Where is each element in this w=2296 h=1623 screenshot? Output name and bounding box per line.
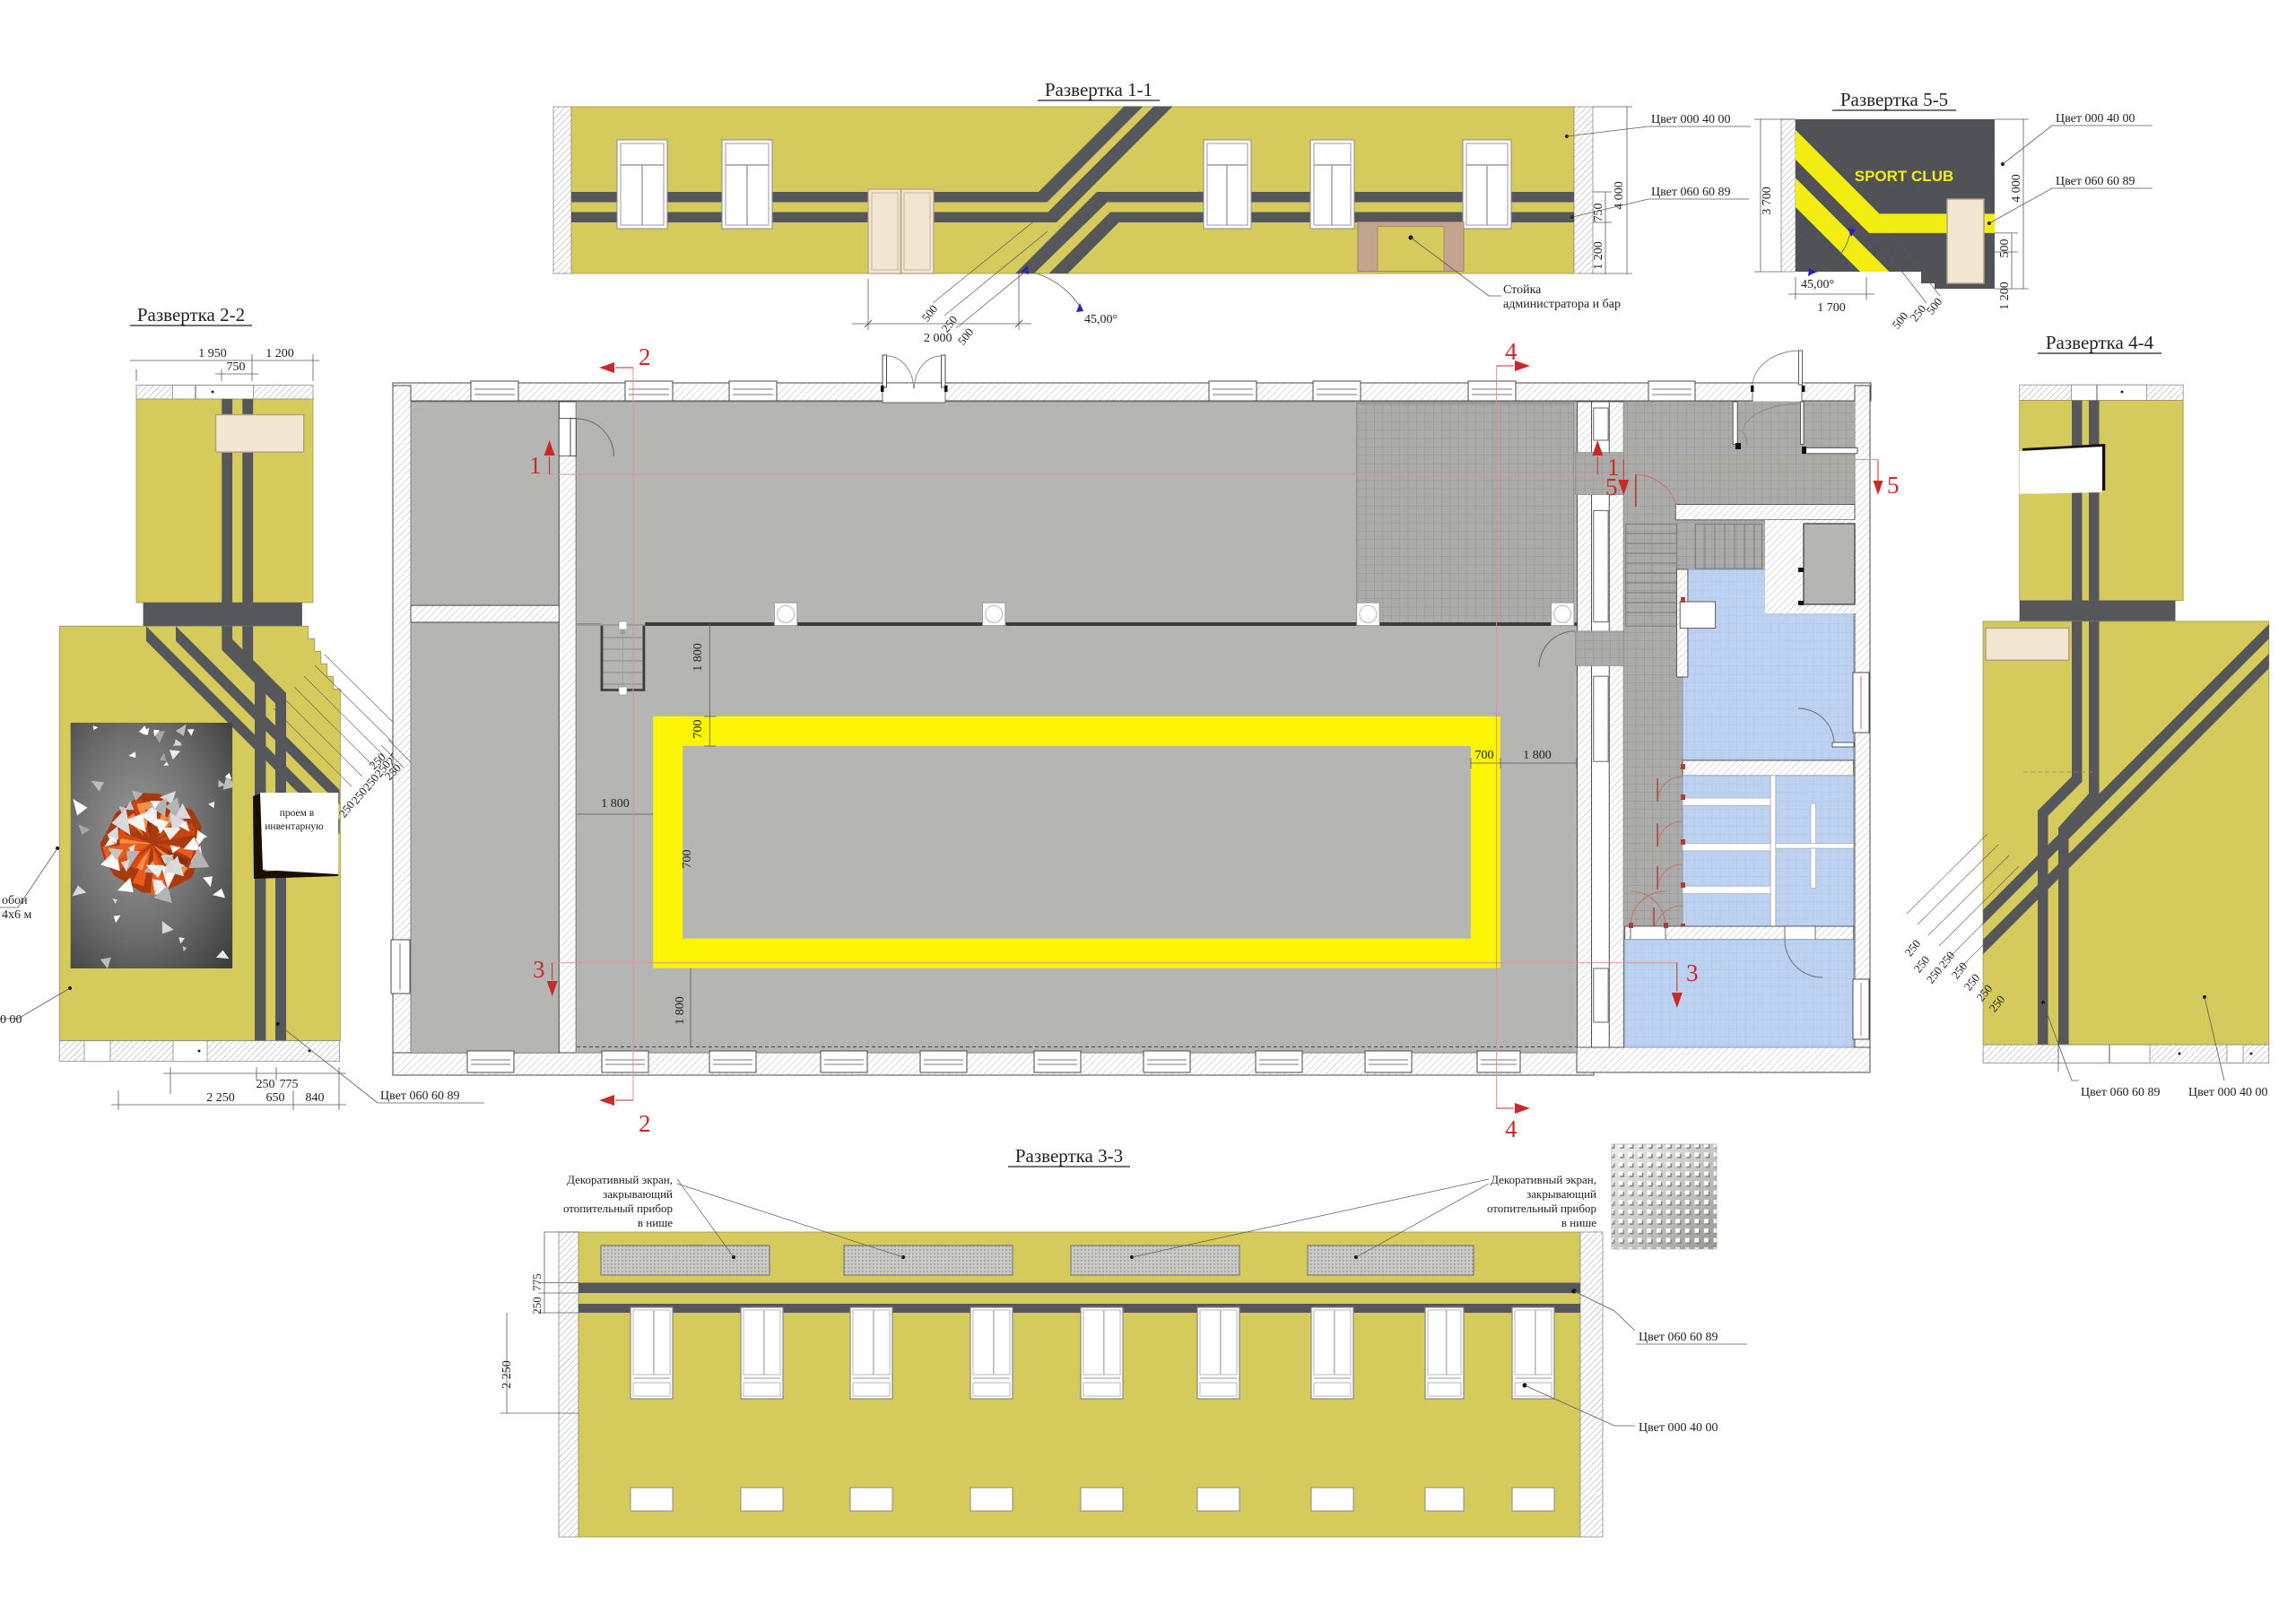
svg-text:проем в: проем в	[280, 808, 315, 819]
svg-text:2 250: 2 250	[500, 1360, 514, 1389]
svg-text:775: 775	[280, 1078, 299, 1091]
svg-text:750: 750	[227, 360, 246, 374]
svg-text:5: 5	[1887, 472, 1900, 499]
svg-text:1 200: 1 200	[1998, 282, 2012, 310]
svg-text:250: 250	[257, 1078, 275, 1091]
svg-text:Развертка 4-4: Развертка 4-4	[2046, 332, 2154, 353]
svg-text:1 200: 1 200	[265, 347, 294, 360]
svg-text:2 250: 2 250	[206, 1091, 235, 1105]
svg-text:1 200: 1 200	[1592, 241, 1605, 270]
svg-text:Развертка 1-1: Развертка 1-1	[1045, 79, 1152, 100]
svg-text:инвентарную: инвентарную	[265, 821, 324, 832]
svg-text:45,00°: 45,00°	[1801, 278, 1834, 291]
svg-text:Развертка 2-2: Развертка 2-2	[137, 304, 245, 325]
svg-text:отопительный прибор: отопительный прибор	[563, 1202, 673, 1215]
svg-text:3: 3	[533, 956, 545, 983]
svg-text:закрывающий: закрывающий	[1526, 1187, 1596, 1201]
svg-text:650: 650	[266, 1091, 285, 1105]
svg-text:Цвет 060 60 89: Цвет 060 60 89	[1639, 1331, 1718, 1344]
svg-text:Развертка 3-3: Развертка 3-3	[1015, 1145, 1123, 1167]
svg-text:250: 250	[530, 1297, 544, 1315]
svg-text:700: 700	[691, 720, 705, 739]
svg-text:5: 5	[1605, 473, 1618, 500]
svg-text:750: 750	[1592, 204, 1605, 222]
svg-text:администратора и бар: администратора и бар	[1503, 298, 1621, 311]
svg-text:Цвет 060 60 89: Цвет 060 60 89	[1651, 186, 1730, 199]
svg-text:1 800: 1 800	[691, 643, 705, 672]
svg-text:1 800: 1 800	[601, 797, 630, 811]
svg-text:отопительный прибор: отопительный прибор	[1487, 1202, 1596, 1215]
svg-text:Цвет 060 60 89: Цвет 060 60 89	[2056, 175, 2135, 188]
svg-text:700: 700	[1475, 749, 1494, 762]
svg-text:Цвет 000 40 00: Цвет 000 40 00	[1651, 113, 1730, 126]
svg-text:4: 4	[1505, 338, 1518, 365]
svg-text:Декоративный экран,: Декоративный экран,	[1491, 1173, 1596, 1186]
svg-text:45,00°: 45,00°	[1084, 313, 1118, 326]
svg-text:840: 840	[306, 1091, 325, 1105]
svg-text:1 800: 1 800	[1523, 749, 1552, 762]
svg-text:Декоративный экран,: Декоративный экран,	[567, 1173, 673, 1186]
svg-text:Цвет 060 60 89: Цвет 060 60 89	[2081, 1086, 2160, 1099]
svg-text:Стойка: Стойка	[1503, 283, 1542, 297]
svg-text:3 700: 3 700	[1761, 187, 1774, 215]
svg-text:Цвет 000 40 00: Цвет 000 40 00	[2056, 112, 2135, 126]
svg-text:4: 4	[1505, 1115, 1518, 1142]
svg-text:в нише: в нише	[638, 1216, 673, 1229]
svg-text:2: 2	[639, 343, 651, 370]
svg-text:Цвет 000 40 00: Цвет 000 40 00	[2188, 1086, 2267, 1099]
svg-text:Цвет 000 40 00: Цвет 000 40 00	[1639, 1421, 1718, 1435]
svg-text:1 950: 1 950	[198, 347, 227, 360]
svg-text:Развертка 5-5: Развертка 5-5	[1840, 89, 1948, 110]
svg-text:Цвет 060 60 89: Цвет 060 60 89	[380, 1089, 459, 1103]
svg-text:700: 700	[681, 850, 694, 869]
svg-text:в нише: в нише	[1561, 1216, 1596, 1229]
svg-text:1 800: 1 800	[674, 996, 687, 1025]
svg-text:500: 500	[1998, 239, 2012, 258]
svg-text:3: 3	[1686, 959, 1699, 986]
svg-text:4 000: 4 000	[2010, 174, 2023, 203]
svg-text:Цвет 000 40 00: Цвет 000 40 00	[0, 1013, 22, 1027]
svg-text:1 700: 1 700	[1817, 301, 1846, 315]
svg-text:1: 1	[529, 452, 542, 479]
svg-text:закрывающий: закрывающий	[603, 1187, 673, 1201]
svg-text:обои: обои	[2, 894, 28, 907]
svg-text:2: 2	[639, 1110, 651, 1137]
svg-text:4х6 м: 4х6 м	[2, 908, 32, 922]
svg-text:4 000: 4 000	[1613, 181, 1626, 210]
svg-text:775: 775	[530, 1273, 544, 1291]
svg-text:SPORT CLUB: SPORT CLUB	[1855, 168, 1954, 185]
